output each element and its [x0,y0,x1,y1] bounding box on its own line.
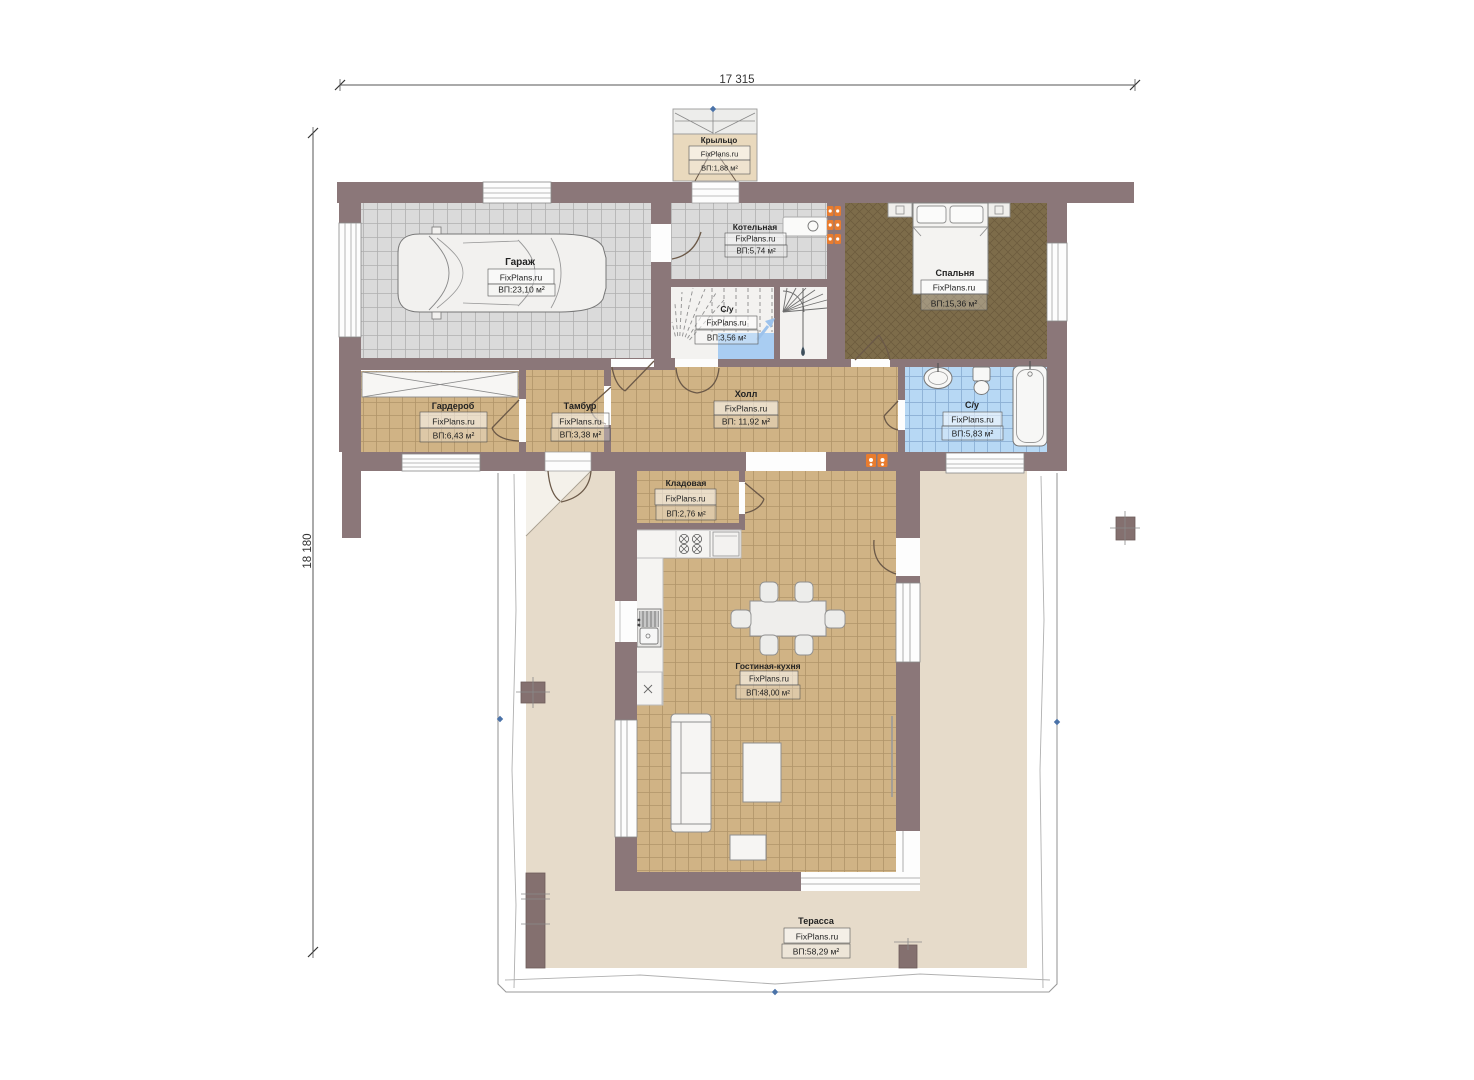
svg-text:ВП:2,76 м²: ВП:2,76 м² [666,510,706,519]
svg-text:FixPlans.ru: FixPlans.ru [951,415,994,425]
svg-text:ВП:23,10 м²: ВП:23,10 м² [498,285,545,295]
svg-text:ВП:3,56 м²: ВП:3,56 м² [707,334,747,343]
svg-text:FixPlans.ru: FixPlans.ru [665,495,705,504]
svg-text:ВП:5,83 м²: ВП:5,83 м² [952,429,994,439]
svg-text:FixPlans.ru: FixPlans.ru [725,404,768,414]
svg-text:FixPlans.ru: FixPlans.ru [701,150,739,159]
svg-text:FixPlans.ru: FixPlans.ru [500,273,543,283]
svg-text:FixPlans.ru: FixPlans.ru [933,283,976,293]
svg-text:FixPlans.ru: FixPlans.ru [559,417,602,427]
svg-text:Холл: Холл [735,389,758,399]
svg-text:ВП:1,88 м²: ВП:1,88 м² [701,164,738,173]
svg-text:С/у: С/у [965,400,979,410]
svg-text:ВП:5,74 м²: ВП:5,74 м² [736,247,776,256]
svg-text:FixPlans.ru: FixPlans.ru [735,235,775,244]
svg-text:ВП: 11,92 м²: ВП: 11,92 м² [722,417,770,427]
svg-text:Гардероб: Гардероб [432,401,475,411]
svg-text:ВП:6,43 м²: ВП:6,43 м² [433,431,475,441]
svg-text:Кладовая: Кладовая [666,478,707,488]
svg-text:Тамбур: Тамбур [564,401,597,411]
svg-text:Котельная: Котельная [733,222,778,232]
svg-text:17 315: 17 315 [719,74,754,86]
svg-text:FixPlans.ru: FixPlans.ru [796,932,839,942]
svg-text:FixPlans.ru: FixPlans.ru [432,417,475,427]
svg-text:Крыльцо: Крыльцо [701,136,738,145]
svg-text:ВП:15,36 м²: ВП:15,36 м² [931,299,978,309]
svg-text:Гостиная-кухня: Гостиная-кухня [735,661,800,671]
svg-text:С/у: С/у [720,304,734,314]
svg-text:Терасса: Терасса [798,916,835,926]
svg-text:FixPlans.ru: FixPlans.ru [706,319,746,328]
svg-text:ВП:58,29 м²: ВП:58,29 м² [793,947,840,957]
svg-text:FixPlans.ru: FixPlans.ru [749,675,789,684]
svg-text:18 180: 18 180 [302,533,314,568]
svg-text:Гараж: Гараж [505,257,536,268]
svg-text:ВП:3,38 м²: ВП:3,38 м² [560,430,602,440]
svg-text:Спальня: Спальня [936,268,975,278]
svg-text:ВП:48,00 м²: ВП:48,00 м² [746,689,790,698]
